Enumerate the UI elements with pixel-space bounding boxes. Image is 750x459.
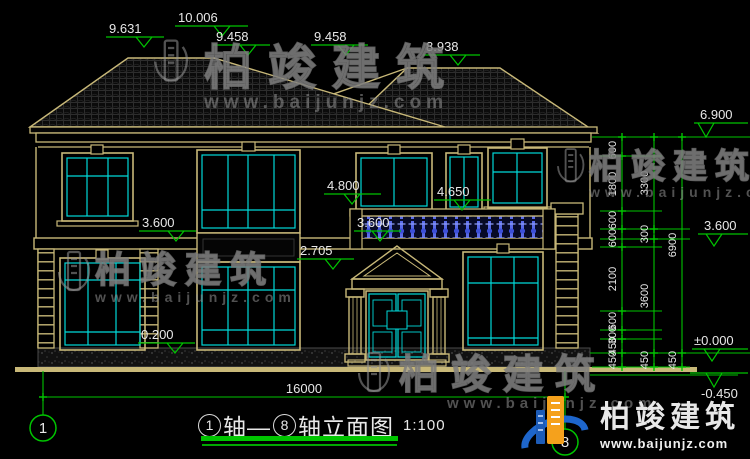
level-mark: 9.631	[109, 21, 142, 36]
dim-label: 450	[607, 351, 619, 369]
window-2f-balcony-left	[356, 145, 432, 211]
brand-name: 柏竣建筑	[600, 401, 740, 434]
level-mark: 4.650	[437, 184, 470, 199]
brand-watermark: 柏竣建筑 www.baijunjz.com	[600, 392, 740, 451]
level-mark: 4.800	[327, 178, 360, 193]
level-mark: 8.938	[426, 39, 459, 54]
axis-number: 8	[561, 434, 569, 451]
title-underline-thin	[202, 444, 397, 446]
elevation-drawing: 9.631 10.006 9.458 9.458 8.938 3.600 0.2…	[0, 0, 750, 459]
dim-label: 3300	[639, 171, 651, 195]
axis-number: 1	[39, 420, 47, 437]
dim-label: 300	[639, 225, 651, 243]
level-mark: 3.600	[704, 218, 737, 233]
window-2f-right	[484, 139, 551, 212]
window-2f-stair-upper	[197, 142, 300, 233]
level-mark: 9.458	[216, 29, 249, 44]
dim-label: 1800	[607, 172, 619, 196]
brand-url: www.baijunjz.com	[600, 436, 740, 451]
dim-label: 450	[639, 351, 651, 369]
title-axis-bubble-end: 8	[273, 414, 296, 437]
dim-label: 600	[607, 211, 619, 229]
cad-elevation-canvas: 9.631 10.006 9.458 9.458 8.938 3.600 0.2…	[0, 0, 750, 459]
dim-label: 3600	[639, 284, 651, 308]
level-mark: 0.200	[141, 327, 174, 342]
ground-line	[15, 367, 697, 372]
plinth	[38, 348, 590, 367]
dimension-chain-labels: 600 1800 600 600 2100 600 300 450 450 33…	[607, 141, 679, 369]
level-mark: 10.006	[178, 10, 218, 25]
dim-label: 600	[607, 229, 619, 247]
level-mark: ±0.000	[694, 333, 734, 348]
door-handle-plate	[387, 311, 407, 329]
level-mark: 3.600	[142, 215, 175, 230]
dimension-total: 16000	[286, 381, 322, 396]
dim-label: 600	[607, 141, 619, 159]
roof	[30, 58, 597, 133]
window-1f-stair-lower	[197, 262, 300, 350]
level-mark: 3.600	[357, 215, 390, 230]
level-mark: 2.705	[300, 243, 333, 258]
dim-label: 6900	[667, 233, 679, 257]
window-2f-left	[57, 145, 138, 226]
dim-label: 2100	[607, 267, 619, 291]
window-1f-right	[463, 244, 543, 350]
title-scale: 1:100	[403, 417, 446, 434]
title-axis-bubble-start: 1	[198, 414, 221, 437]
level-mark: 9.458	[314, 29, 347, 44]
spandrel-panel	[197, 233, 300, 262]
window-1f-left	[60, 250, 145, 350]
balcony-door	[446, 145, 482, 211]
dim-label: 450	[667, 351, 679, 369]
title-underline	[201, 436, 398, 441]
level-mark: 6.900	[700, 107, 733, 122]
